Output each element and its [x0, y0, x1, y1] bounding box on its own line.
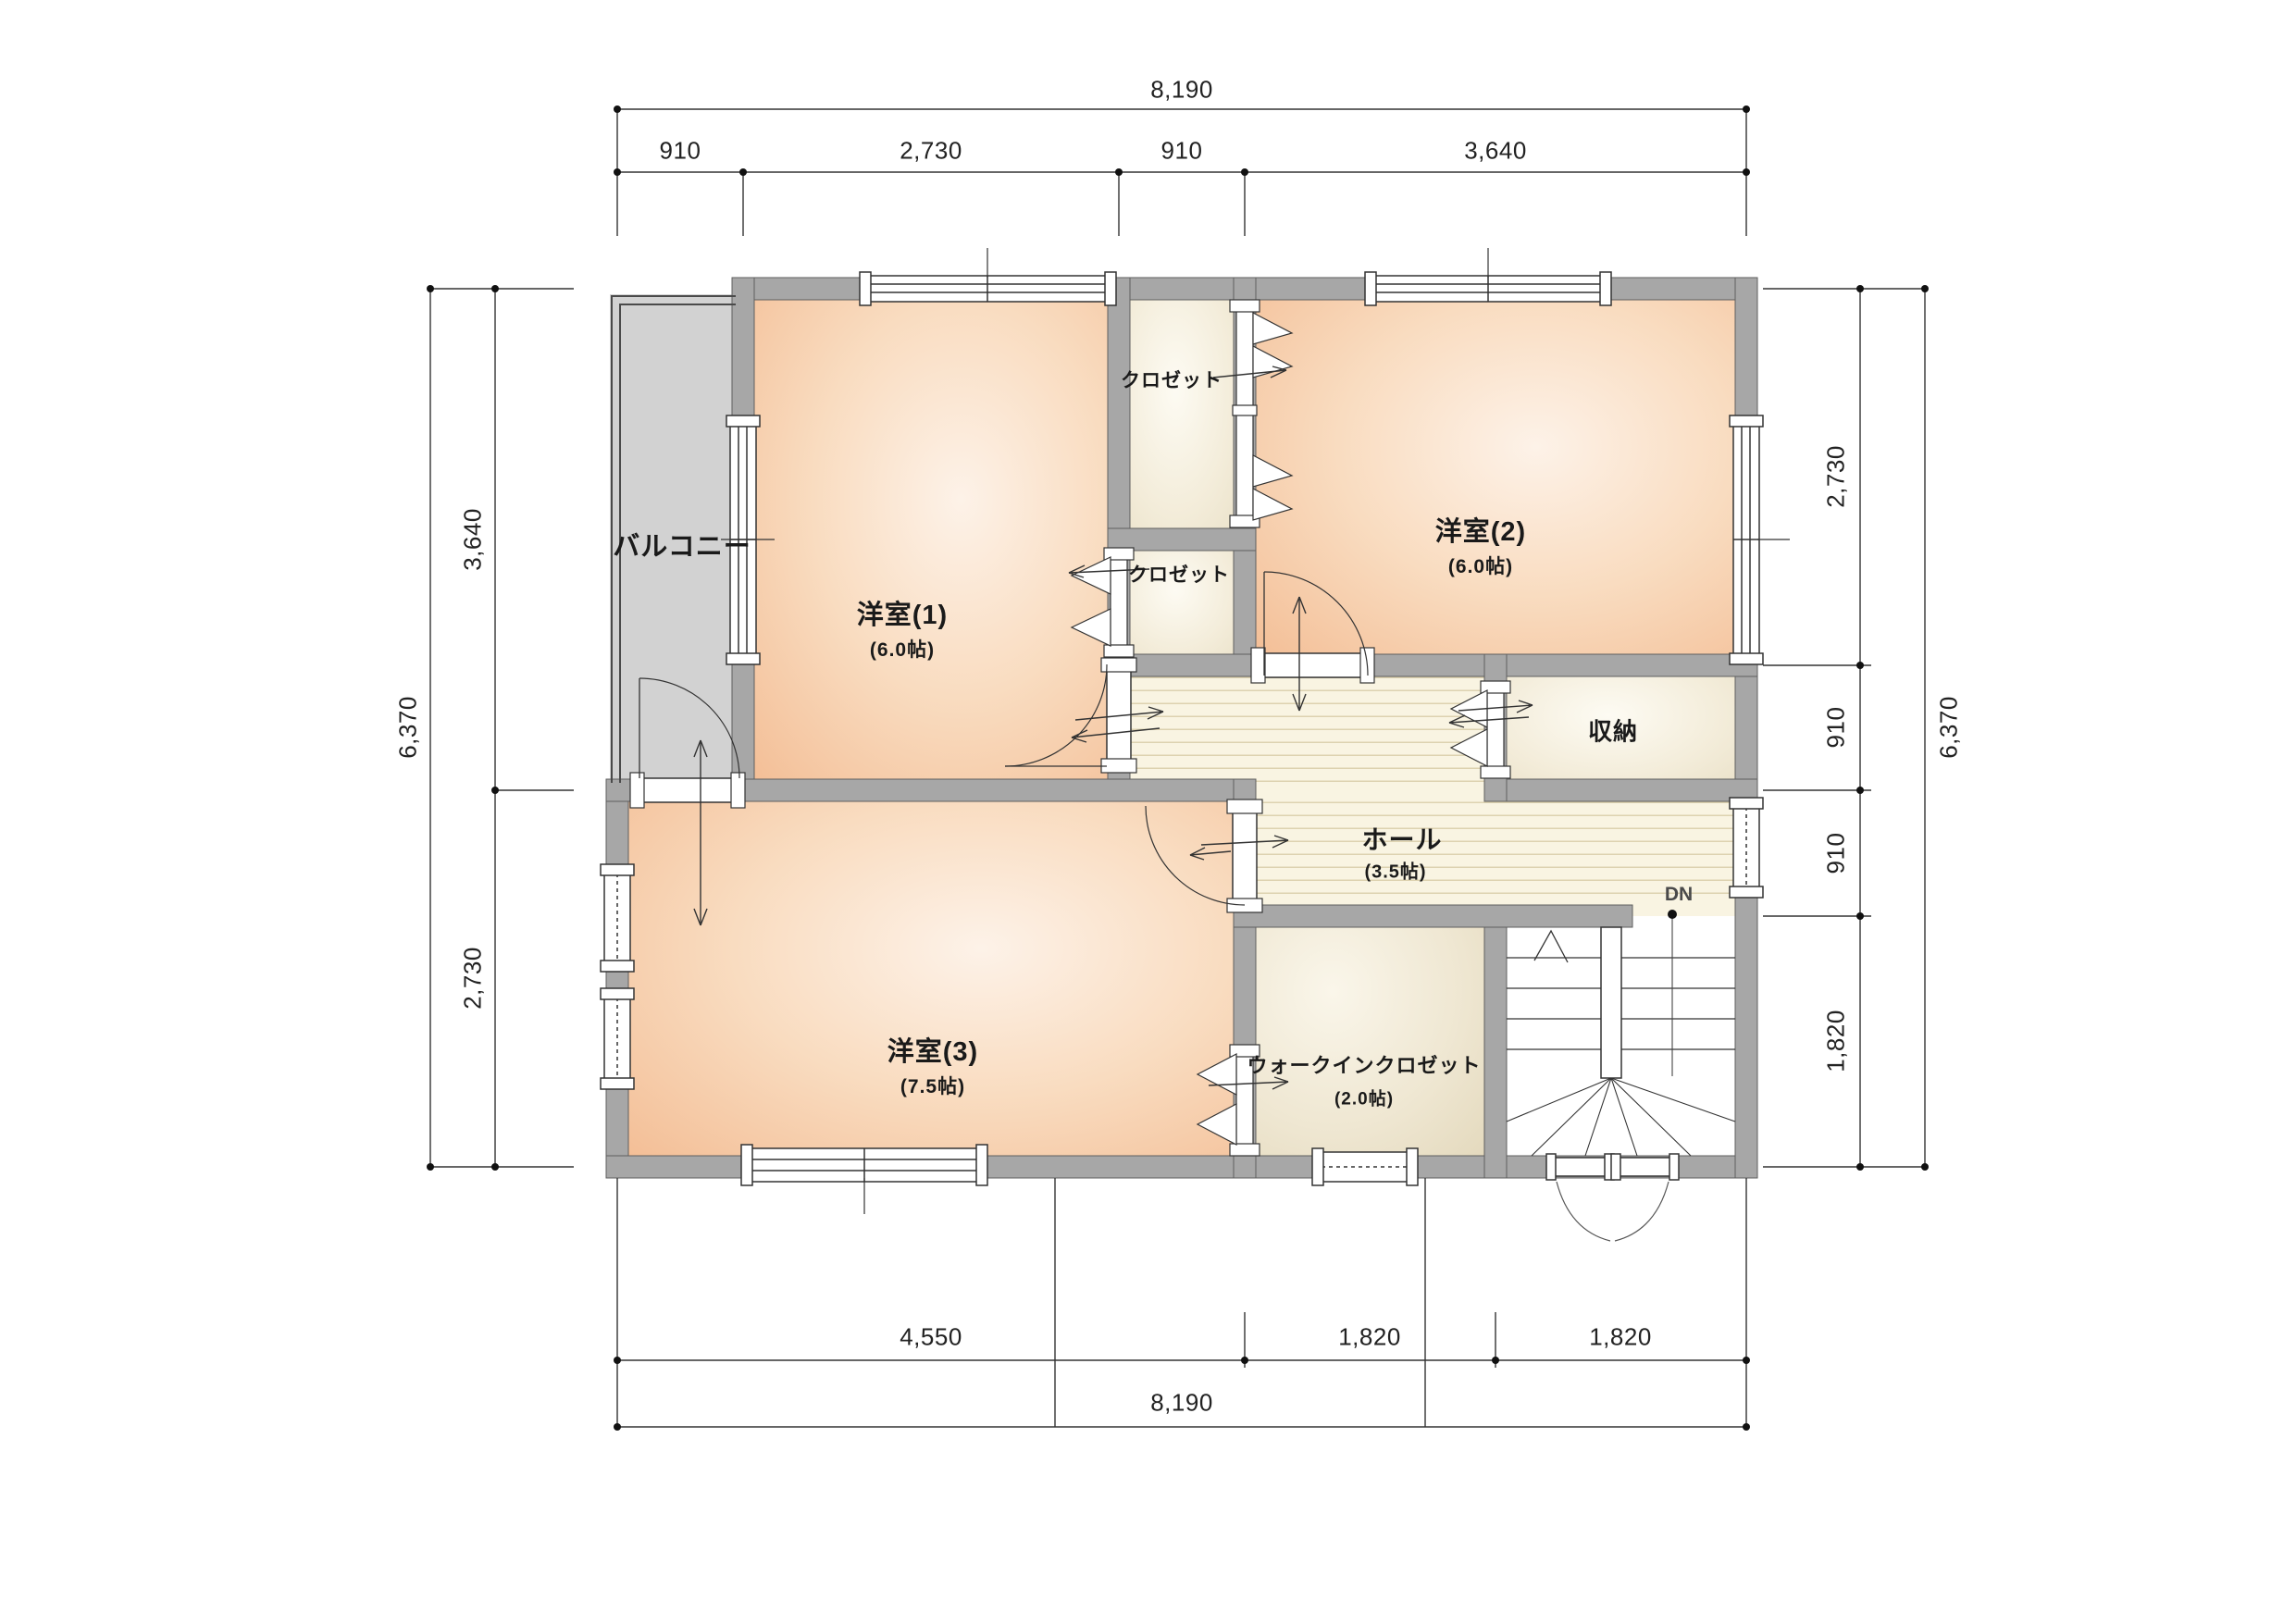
bifold-doors	[1072, 300, 1510, 1156]
bifold-closet-upper	[1230, 300, 1292, 527]
wall-room2-hall	[1108, 654, 1757, 676]
room3-label: 洋室(3)	[887, 1030, 978, 1069]
wall-right	[1735, 278, 1757, 1178]
stair-center-spine	[1601, 927, 1621, 1078]
dim-right-seg1: 910	[1822, 707, 1851, 749]
window-wic-bottom	[1312, 1148, 1418, 1185]
dim-top-seg1: 2,730	[900, 137, 962, 166]
dim-left	[430, 289, 574, 1167]
door-room2	[1251, 572, 1374, 683]
dim-bottom-seg1: 1,820	[1338, 1323, 1401, 1352]
plan-linework	[0, 0, 2296, 1624]
dim-top	[617, 109, 1746, 236]
closet-lower-label: クロゼット	[1128, 560, 1230, 588]
casement-swing-arcs	[1557, 1182, 1669, 1241]
window-room3-left-a	[601, 864, 634, 972]
bifold-closet-lower	[1072, 548, 1134, 657]
dim-left-seg0: 3,640	[459, 508, 488, 571]
wall-wic-stairs	[1484, 905, 1507, 1178]
staircase	[1507, 910, 1735, 1156]
dim-right-seg3: 1,820	[1822, 1010, 1851, 1072]
room1-size: (6.0帖)	[870, 635, 935, 663]
stair-down-dot	[1668, 910, 1677, 919]
door-room3	[1146, 800, 1262, 912]
door-room1	[1005, 658, 1136, 773]
window-room3-left-b	[601, 988, 634, 1089]
storage-label: 収納	[1588, 713, 1638, 748]
floorplan-canvas: バルコニー 洋室(1) (6.0帖) 洋室(2) (6.0帖) 洋室(3) (7…	[0, 0, 2296, 1624]
closet-upper-label: クロゼット	[1121, 366, 1222, 393]
bifold-storage	[1451, 681, 1510, 778]
dim-bottom-seg2: 1,820	[1589, 1323, 1652, 1352]
dim-left-seg1: 2,730	[459, 947, 488, 1010]
dim-top-seg2: 910	[1161, 137, 1203, 166]
dim-top-total: 8,190	[1150, 76, 1213, 105]
stair-winders	[1507, 1078, 1735, 1156]
window-stairs-bottom-left	[1546, 1154, 1614, 1180]
dim-top-seg0: 910	[660, 137, 701, 166]
window-hall-right	[1730, 798, 1763, 898]
balcony-label: バルコニー	[613, 525, 751, 564]
hall-label: ホール	[1361, 820, 1442, 857]
wic-size: (2.0帖)	[1334, 1085, 1394, 1110]
arrow-balcony	[694, 740, 707, 925]
dim-bottom-total: 8,190	[1150, 1389, 1213, 1418]
room2-label: 洋室(2)	[1435, 510, 1526, 549]
hall-size: (3.5帖)	[1364, 857, 1426, 884]
door-balcony	[630, 678, 745, 808]
walls	[606, 278, 1757, 1178]
stairs-down-label: DN	[1665, 884, 1693, 906]
room2-size: (6.0帖)	[1448, 552, 1513, 579]
dim-right-seg2: 910	[1822, 833, 1851, 874]
room3-size: (7.5帖)	[900, 1072, 965, 1099]
wic-label: ウォークインクロゼット	[1247, 1049, 1481, 1079]
wall-left	[606, 779, 628, 1178]
dim-right-total: 6,370	[1935, 696, 1964, 759]
dim-bottom-seg0: 4,550	[900, 1323, 962, 1352]
window-stairs-bottom-right	[1611, 1154, 1679, 1180]
room1-label: 洋室(1)	[857, 593, 948, 632]
dim-left-total: 6,370	[394, 696, 423, 759]
dim-top-seg3: 3,640	[1464, 137, 1527, 166]
dimension-lines	[430, 109, 1925, 1427]
wall-stairs-top	[1234, 905, 1632, 927]
wall-storage-bottom	[1484, 779, 1757, 801]
dim-right-seg0: 2,730	[1822, 445, 1851, 508]
